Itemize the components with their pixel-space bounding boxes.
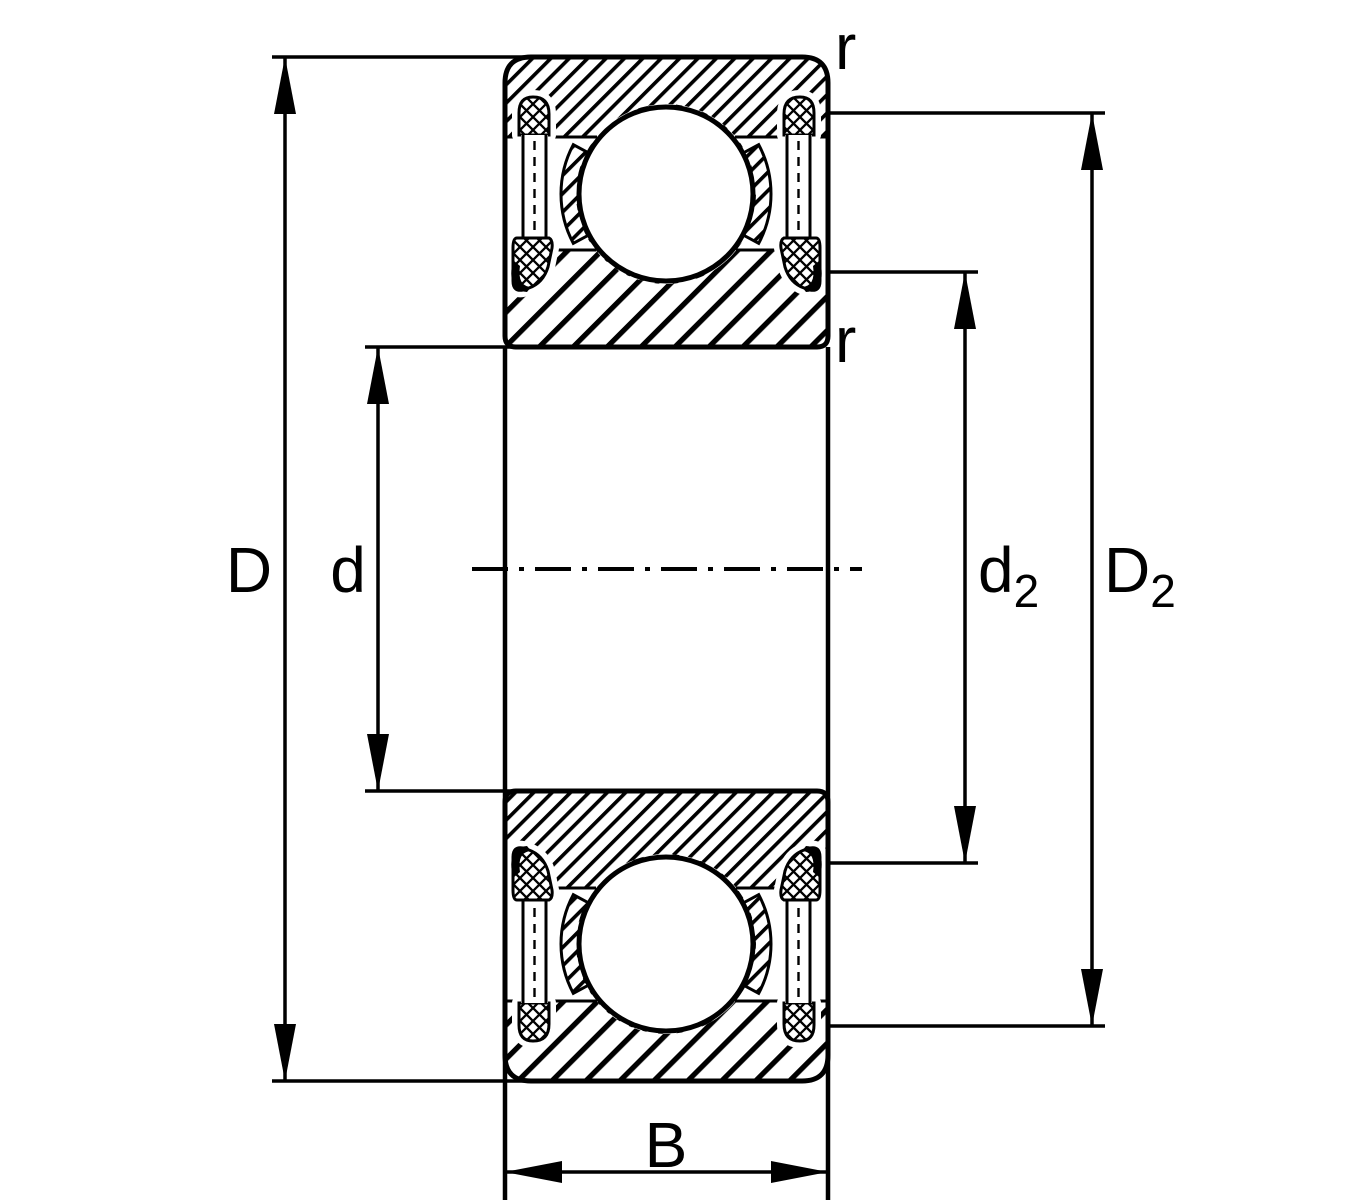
bearing-diagram-canvas: D d d2 D2 B r r	[0, 0, 1350, 1200]
seal-top-right	[781, 97, 822, 292]
arrow-down-D2	[1081, 969, 1103, 1026]
seal-top-left	[511, 97, 552, 292]
label-width: B	[645, 1109, 688, 1181]
ball-top	[579, 107, 753, 281]
arrow-right-B	[771, 1161, 828, 1183]
label-inner-recess-subscript: 2	[1014, 565, 1040, 617]
seal-bottom-right	[781, 846, 822, 1041]
label-outer-diameter: D	[226, 534, 272, 606]
ball-bottom	[579, 857, 753, 1031]
label-outer-recess: D2	[1104, 534, 1176, 617]
label-chamfer-inner: r	[835, 304, 856, 376]
label-outer-recess-base: D	[1104, 534, 1150, 606]
arrow-down-d2	[954, 806, 976, 863]
bearing-top-section	[505, 57, 828, 347]
arrow-left-B	[505, 1161, 562, 1183]
arrow-down-d	[367, 734, 389, 791]
arrow-up-d2	[954, 272, 976, 329]
bearing-bottom-section	[505, 791, 828, 1081]
label-outer-recess-subscript: 2	[1150, 565, 1176, 617]
label-inner-recess: d2	[978, 534, 1039, 617]
arrow-up-D2	[1081, 113, 1103, 170]
bearing-dimension-drawing: D d d2 D2 B r r	[0, 0, 1350, 1200]
label-inner-recess-base: d	[978, 534, 1014, 606]
label-chamfer-outer: r	[835, 11, 856, 83]
arrow-down-D	[274, 1024, 296, 1081]
label-bore-diameter: d	[330, 534, 366, 606]
arrow-up-D	[274, 57, 296, 114]
arrow-up-d	[367, 347, 389, 404]
seal-bottom-left	[511, 846, 552, 1041]
